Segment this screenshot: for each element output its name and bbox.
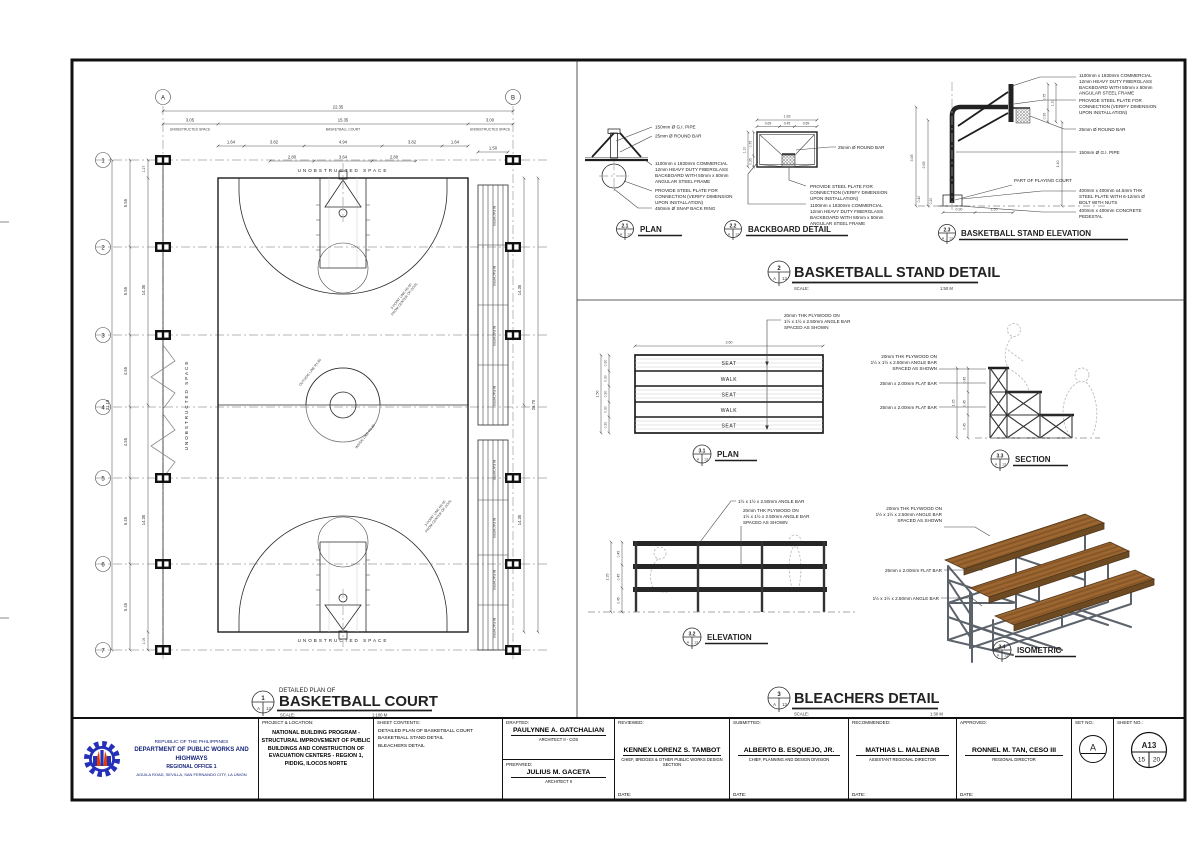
- dim-row: 0.30: [604, 375, 608, 382]
- agency-republic: REPUBLIC OF THE PHILIPPINES: [125, 739, 258, 746]
- prepared-title: ARCHITECT II: [503, 779, 614, 784]
- recommended-title: ASSISTANT REGIONAL DIRECTOR: [849, 757, 956, 762]
- bleachers-section-title: SECTION: [1015, 455, 1051, 464]
- detail-marker-3-4: 3.4 A 13 ISOMETRIC: [993, 641, 1076, 662]
- dim-step: 0.45: [963, 423, 967, 430]
- detail-marker-3-2: 3.2 A 13 ELEVATION: [683, 628, 768, 649]
- dim-total-height: 1.35: [606, 574, 610, 581]
- dim-step: 0.45: [963, 377, 967, 384]
- ref-sheet: 13: [735, 233, 739, 237]
- sheet-contents-label: SHEET CONTENTS:: [374, 718, 502, 725]
- dim-overall-width: 22.35: [333, 105, 344, 110]
- row-label-walk: WALK: [721, 408, 737, 414]
- ann-snap-ring: 450mm Ø SNAP BACK RING: [655, 206, 716, 211]
- dim-bb-upper: 0.75: [1043, 94, 1047, 101]
- grid-row-7: 7: [101, 649, 105, 655]
- stand-header: 2 A 13 BASKETBALL STAND DETAIL SCALE: 1:…: [768, 261, 1000, 291]
- grid-row-1: 1: [101, 159, 105, 165]
- dim-row: 0.30: [604, 391, 608, 398]
- stand-detail-title: BASKETBALL STAND DETAIL: [794, 265, 1000, 281]
- grid-lines: [96, 106, 548, 660]
- grid-row-3: 3: [101, 334, 105, 340]
- note-inside-circle: INSIDE LINE R1.80: [354, 423, 376, 449]
- recommended-name: MATHIAS L. MALENAB: [849, 747, 956, 754]
- dim-right-group-1: 14.35: [517, 284, 522, 295]
- detail-marker-2-1: 2.1 A 13 PLAN: [617, 221, 683, 241]
- ref-sheet: 13: [1004, 654, 1008, 658]
- detail-no: 3.4: [999, 645, 1006, 651]
- set-no-cell: SET NO.: A: [1071, 718, 1113, 799]
- ann-round-bar: 25mm Ø ROUND BAR: [838, 145, 885, 150]
- ann-steel-plate-bolts: 400mm x 400mm x4.5mm THKSTEEL PLATE WITH…: [1079, 188, 1145, 205]
- label-unobstructed-right: UNOBSTRUCTED SPACE: [470, 128, 511, 132]
- label-bleachers: BLEACHERS: [492, 570, 496, 591]
- bleachers-detail-title: BLEACHERS DETAIL: [794, 691, 940, 707]
- bleachers-scale: 1:30 M: [930, 712, 943, 717]
- detail-no-3: 3: [777, 692, 781, 698]
- ann-plywood: 20mm THK PLYWOOD ON1½ x 1½ x 2.50mm ANGL…: [784, 313, 851, 330]
- dim-pole-height: 3.05: [910, 155, 914, 162]
- ann-flat-bar: 25mm x 2.00mm FLAT BAR: [880, 405, 938, 410]
- dim-row-6: 5.45: [123, 602, 128, 611]
- dim-bb-h1: 0.75: [749, 141, 753, 148]
- dim-bb-width: 1.83: [784, 115, 791, 119]
- label-bleachers: BLEACHERS: [492, 386, 496, 407]
- ann-round-bar: 25mm Ø ROUND BAR: [1079, 127, 1126, 132]
- label-unobstructed-bottom: UNOBSTRUCTED SPACE: [298, 638, 389, 643]
- recommended-date-label: DATE:: [852, 792, 865, 797]
- dim-ring-height: 2.65: [922, 162, 926, 169]
- set-no-value: A: [1089, 743, 1095, 753]
- row-label-seat: SEAT: [721, 424, 736, 430]
- dim-court-height: 28.70: [531, 399, 536, 410]
- approved-label: APPROVED:: [957, 718, 1071, 725]
- dim-margin-left: 3.05: [186, 118, 195, 123]
- bleachers-plan-title: PLAN: [717, 450, 739, 459]
- label-bleachers: BLEACHERS: [492, 460, 496, 481]
- project-cell: PROJECT & LOCATION: NATIONAL BUILDING PR…: [258, 718, 373, 799]
- label-unobstructed-left: UNOBSTRUCTED SPACE: [170, 128, 211, 132]
- ref-sheet: 13: [694, 641, 698, 645]
- dim-inner-bottom: 1.05: [142, 638, 146, 645]
- recommended-cell: RECOMMENDED: MATHIAS L. MALENAB ASSISTAN…: [848, 718, 956, 799]
- dim-sub-2: 3.82: [270, 140, 279, 145]
- ann-pedestal: 400mm x 400mm CONCRETEPEDESTAL: [1079, 208, 1142, 219]
- detail-marker-2-3: 2.3 A 13 BASKETBALL STAND ELEVATION: [939, 225, 1129, 245]
- grid-col-a: A: [161, 96, 165, 102]
- submitted-title: CHIEF, PLANNING AND DESIGN DIVISION: [730, 757, 848, 762]
- backboard-detail: 1.83 0.69 0.45 0.69 1.10 0.75 0.35 25mm …: [725, 115, 888, 241]
- reviewed-label: REVIEWED:: [615, 718, 729, 725]
- bleachers-section: 0.45 0.45 0.45 1.35 20mm THK PLYWOOD ON1…: [871, 324, 1100, 472]
- bleachers-isometric: 20mm THK PLYWOOD ON1½ x 1½ x 2.50mm ANGL…: [873, 506, 1154, 662]
- dim-row-2: 5.55: [123, 286, 128, 295]
- dim-court-width: 15.35: [338, 118, 349, 123]
- label-basketball-court: BASKETBALL COURT: [326, 128, 360, 132]
- dim-sub-1: 1.64: [227, 140, 236, 145]
- dim-step: 0.45: [617, 574, 621, 581]
- row-label-walk: WALK: [721, 377, 737, 383]
- ann-steel-plate: PROVIDE STEEL PLATE FORCONNECTION (VERIF…: [655, 188, 733, 205]
- ref-sheet: 13: [627, 233, 631, 237]
- court-plan: A B 1 2 3 4 5 6 7 22.35 3.05 15.35 3.00 …: [96, 90, 549, 718]
- court-dims-left: 31.10 5.55 5.55 4.55 4.55 5.45 5.45 1.27…: [105, 160, 148, 650]
- dim-board-offset: 1.40: [1056, 161, 1060, 168]
- dim-bleacher-width: 1.50: [489, 146, 498, 151]
- court-scale: 1:100 M: [372, 713, 388, 718]
- note-three-point-top: 3-POINT LINE R6.60FROM CENTER OF GOAL: [387, 279, 419, 316]
- sheet-no-label: SHEET NO.:: [1114, 718, 1184, 725]
- dpwh-logo: [79, 736, 125, 782]
- ann-angle-bar: 1½ x 1½ x 2.50mm ANGLE BAR: [873, 595, 940, 601]
- dim-plan-height: 1.50: [596, 391, 600, 398]
- drafted-label: DRAFTED:: [503, 718, 614, 725]
- grid-row-2: 2: [101, 246, 105, 252]
- ann-steel-plate: PROVIDE STEEL PLATE FORCONNECTION (VERIF…: [1079, 98, 1157, 115]
- detail-no: 2.1: [622, 224, 629, 230]
- dim-key-2: 3.64: [339, 155, 348, 160]
- ref-sheet: 13: [1002, 463, 1006, 467]
- ann-plywood: 20mm THK PLYWOOD ON1½ x 1½ x 2.50mm ANGL…: [743, 508, 810, 525]
- grid-row-6: 6: [101, 563, 105, 569]
- ref-set: A: [773, 276, 776, 281]
- dim-total-height: 1.35: [952, 400, 956, 407]
- dim-pedestal-height: 0.40: [917, 196, 921, 203]
- dim-court-group-2: 14.35: [141, 514, 146, 525]
- ref-sheet: 13: [266, 706, 271, 711]
- stand-elevation: 3.05 2.65 0.40 0.20 0.90 1.20 1.40 0.75 …: [910, 73, 1157, 244]
- ann-gi-pipe: 150mm Ø G.I. PIPE: [1079, 150, 1120, 155]
- bleachers-isometric-title: ISOMETRIC: [1017, 646, 1062, 655]
- dim-row-1: 5.55: [123, 198, 128, 207]
- row-label-seat: SEAT: [721, 393, 736, 399]
- ref-set: A: [773, 702, 776, 707]
- ann-backboard-spec: 1100mm x 1830mm COMMERCIAL12mm HEAVY DUT…: [1079, 73, 1153, 96]
- approved-title: REGIONAL DIRECTOR: [957, 757, 1071, 762]
- dim-plan-width: 3.60: [726, 341, 733, 345]
- court-markings: [151, 160, 468, 650]
- sheet-no-value: A13: [1142, 741, 1157, 750]
- project-label: PROJECT & LOCATION:: [259, 718, 373, 725]
- label-unobstructed-top: UNOBSTRUCTED SPACE: [298, 168, 389, 173]
- stand-scale: 1:50 M: [940, 286, 953, 291]
- drafted-title: ARCHITECT II - COS: [503, 737, 614, 742]
- label-bleachers: BLEACHERS: [492, 326, 496, 347]
- recommended-label: RECOMMENDED:: [849, 718, 956, 725]
- stand-elevation-title: BASKETBALL STAND ELEVATION: [961, 229, 1091, 238]
- reviewed-name: KENNEX LORENZ S. TAMBOT: [615, 747, 729, 754]
- label-bleachers: BLEACHERS: [492, 206, 496, 227]
- detail-no: 2.2: [730, 224, 737, 230]
- reviewed-title: CHIEF, BRIDGES & OTHER PUBLIC WORKS DESI…: [615, 757, 729, 767]
- detail-no: 3.2: [689, 632, 696, 638]
- court-annotations: OUTSIDE LINE R1.80 INSIDE LINE R1.80 3-P…: [298, 279, 452, 533]
- title-block: REPUBLIC OF THE PHILIPPINES DEPARTMENT O…: [73, 718, 1184, 799]
- ref-set: A: [942, 237, 945, 241]
- dim-row: 0.30: [604, 422, 608, 429]
- dim-bb-lower: 0.35: [1043, 113, 1047, 120]
- grid-col-b: B: [511, 96, 515, 102]
- dim-bb-w1: 0.69: [765, 122, 772, 126]
- approved-cell: APPROVED: RONNEL M. TAN, CESO III REGION…: [956, 718, 1071, 799]
- dim-row: 0.30: [604, 360, 608, 367]
- drafted-name: PAULYNNE A. GATCHALIAN: [503, 727, 614, 734]
- detail-marker-3-1: 3.1 A 13 PLAN: [693, 445, 757, 466]
- reviewed-date-label: DATE:: [618, 792, 631, 797]
- label-bleachers: BLEACHERS: [492, 266, 496, 287]
- dim-row-5: 5.45: [123, 516, 128, 525]
- backboard-detail-title: BACKBOARD DETAIL: [748, 225, 831, 234]
- dim-bb-w3: 0.69: [803, 122, 810, 126]
- sheet-no-page: 15: [1138, 757, 1146, 764]
- ref-sheet: 13: [949, 237, 953, 241]
- dim-bb-height: 1.10: [743, 147, 747, 154]
- bleachers-elevation: 0.45 0.45 0.45 1.35 1½ x 1½ x 2.50mm ANG…: [588, 498, 858, 649]
- ref-sheet: 13: [782, 702, 787, 707]
- label-bleachers: BLEACHERS: [492, 618, 496, 639]
- bleachers-plan: SEAT WALK SEAT WALK SEAT 3.60 1.50 0.30 …: [596, 313, 852, 466]
- submitted-name: ALBERTO B. ESQUEJO, JR.: [730, 747, 848, 754]
- dim-sub-3: 4.94: [339, 140, 348, 145]
- sheet-no-cell: SHEET NO.: A13 15 20: [1113, 718, 1184, 799]
- prepared-name: JULIUS M. GACETA: [503, 769, 614, 776]
- stand-plan: 150mm Ø G.I. PIPE 25mm Ø ROUND BAR 1100m…: [585, 125, 733, 241]
- ref-set: A: [728, 233, 731, 237]
- ref-set: A: [997, 654, 1000, 658]
- ann-gi-pipe: 150mm Ø G.I. PIPE: [655, 125, 696, 130]
- dim-inner-top: 1.27: [142, 166, 146, 173]
- ann-steel-plate: PROVIDE STEEL PLATE FORCONNECTION (VERIF…: [810, 184, 888, 201]
- row-label-seat: SEAT: [721, 361, 736, 367]
- detail-marker-3-3: 3.3 A 13 SECTION: [991, 450, 1068, 471]
- agency-address: AGUILA ROAD, SEVILLA, SAN FERNANDO CITY,…: [125, 772, 258, 778]
- reviewed-cell: REVIEWED: KENNEX LORENZ S. TAMBOT CHIEF,…: [614, 718, 729, 799]
- label-unobstructed-side: UNOBSTRUCTED SPACE: [184, 360, 189, 451]
- dim-row-3: 4.55: [123, 366, 128, 375]
- dim-step: 0.45: [617, 597, 621, 604]
- ann-backboard-spec: 1100mm x 1830mm COMMERCIAL12mm HEAVY DUT…: [655, 161, 729, 184]
- dim-row-4: 4.55: [123, 437, 128, 446]
- dim-overall-height: 31.10: [105, 399, 110, 410]
- court-header: 1 A 13 DETAILED PLAN OF BASKETBALL COURT…: [252, 688, 438, 718]
- bleachers-elevation-title: ELEVATION: [707, 633, 752, 642]
- ann-round-bar: 25mm Ø ROUND BAR: [655, 134, 702, 139]
- dim-bb-h2: 0.35: [749, 158, 753, 165]
- ann-angle-bar: 1½ x 1½ x 2.50mm ANGLE BAR: [738, 498, 805, 504]
- submitted-label: SUBMITTED:: [730, 718, 848, 725]
- set-no-marker: A: [1077, 733, 1109, 765]
- dim-key-3: 2.80: [390, 155, 399, 160]
- ref-sheet: 13: [782, 276, 787, 281]
- bleachers-header: 3 A 13 BLEACHERS DETAIL SCALE: 1:30 M: [768, 687, 943, 717]
- dim-margin-right: 3.00: [486, 118, 495, 123]
- ref-sheet: 13: [704, 458, 708, 462]
- detail-no: 3.3: [997, 454, 1004, 460]
- stand-detail-panel: 150mm Ø G.I. PIPE 25mm Ø ROUND BAR 1100m…: [585, 73, 1157, 291]
- dim-step: 0.45: [963, 400, 967, 407]
- dim-bb-height: 1.10: [1051, 100, 1055, 107]
- scale-label: SCALE:: [794, 712, 809, 717]
- agency-department: DEPARTMENT OF PUBLIC WORKS AND HIGHWAYS: [125, 746, 258, 764]
- dim-sub-4: 3.82: [408, 140, 417, 145]
- approved-date-label: DATE:: [960, 792, 973, 797]
- ann-playing-court: PART OF PLAYING COURT: [1014, 178, 1072, 183]
- ref-set: A: [620, 233, 623, 237]
- ref-set: A: [995, 463, 998, 467]
- sheet-no-marker: A13 15 20: [1128, 729, 1170, 771]
- dim-court-group-1: 14.35: [141, 284, 146, 295]
- ref-set: A: [687, 641, 690, 645]
- detail-no: 3.1: [699, 449, 706, 455]
- sheet-contents-text: DETAILED PLAN OF BASKETBALL COURTBASKETB…: [374, 728, 502, 750]
- detail-no-2: 2: [777, 266, 781, 272]
- note-center-circle: OUTSIDE LINE R1.80: [298, 358, 322, 387]
- dim-bb-w2: 0.45: [784, 122, 791, 126]
- submitted-cell: SUBMITTED: ALBERTO B. ESQUEJO, JR. CHIEF…: [729, 718, 848, 799]
- dim-plate: 0.20: [929, 198, 933, 205]
- ref-set: A: [257, 706, 260, 711]
- ann-backboard-spec: 1100mm x 1830mm COMMERCIAL12mm HEAVY DUT…: [810, 203, 884, 226]
- sheet-no-total: 20: [1153, 757, 1161, 764]
- court-title: BASKETBALL COURT: [279, 693, 438, 710]
- detail-no-1: 1: [261, 696, 265, 702]
- ref-set: A: [697, 458, 700, 462]
- ann-plywood: 20mm THK PLYWOOD ON1½ x 1½ x 2.50mm ANGL…: [871, 354, 938, 371]
- ann-flat-bar: 25mm x 2.00mm FLAT BAR: [885, 568, 943, 573]
- label-bleachers: BLEACHERS: [492, 518, 496, 539]
- scale-label: SCALE:: [794, 286, 809, 291]
- bleachers-panel: SEAT WALK SEAT WALK SEAT 3.60 1.50 0.30 …: [588, 313, 1154, 717]
- prepared-label: PREPARED:: [503, 760, 614, 767]
- grid-row-5: 5: [101, 477, 105, 483]
- sheet-contents-cell: SHEET CONTENTS: DETAILED PLAN OF BASKETB…: [373, 718, 502, 799]
- dim-key-1: 2.80: [288, 155, 297, 160]
- stand-plan-title: PLAN: [640, 225, 662, 234]
- detail-no: 2.3: [944, 228, 951, 234]
- dim-step: 0.45: [617, 551, 621, 558]
- approved-name: RONNEL M. TAN, CESO III: [957, 747, 1071, 754]
- agency-office: REGIONAL OFFICE 1: [125, 764, 258, 772]
- court-bleachers: BLEACHERS BLEACHERS BLEACHERS BLEACHERS …: [478, 185, 508, 650]
- note-three-point-bottom: 3-POINT LINE R6.60FROM CENTER OF GOAL: [421, 496, 453, 533]
- ann-plywood: 20mm THK PLYWOOD ON1½ x 1½ x 2.50mm ANGL…: [876, 506, 943, 523]
- dim-base-width: 0.90: [956, 208, 963, 212]
- submitted-date-label: DATE:: [733, 792, 746, 797]
- dim-right-group-2: 14.35: [517, 514, 522, 525]
- dim-row: 0.30: [604, 406, 608, 413]
- ann-flat-bar: 25mm x 2.00mm FLAT BAR: [880, 381, 938, 386]
- drafted-prepared-cell: DRAFTED: PAULYNNE A. GATCHALIAN ARCHITEC…: [502, 718, 614, 799]
- set-no-label: SET NO.:: [1072, 718, 1113, 725]
- court-dims-top: 22.35 3.05 15.35 3.00 UNOBSTRUCTED SPACE…: [163, 105, 513, 162]
- drawing-sheet: A B 1 2 3 4 5 6 7 22.35 3.05 15.35 3.00 …: [0, 0, 1200, 848]
- scale-label: SCALE:: [280, 713, 295, 718]
- agency-cell: REPUBLIC OF THE PHILIPPINES DEPARTMENT O…: [73, 718, 258, 799]
- dim-sub-5: 1.64: [451, 140, 460, 145]
- project-text: NATIONAL BUILDING PROGRAM -STRUCTURAL IM…: [259, 730, 373, 769]
